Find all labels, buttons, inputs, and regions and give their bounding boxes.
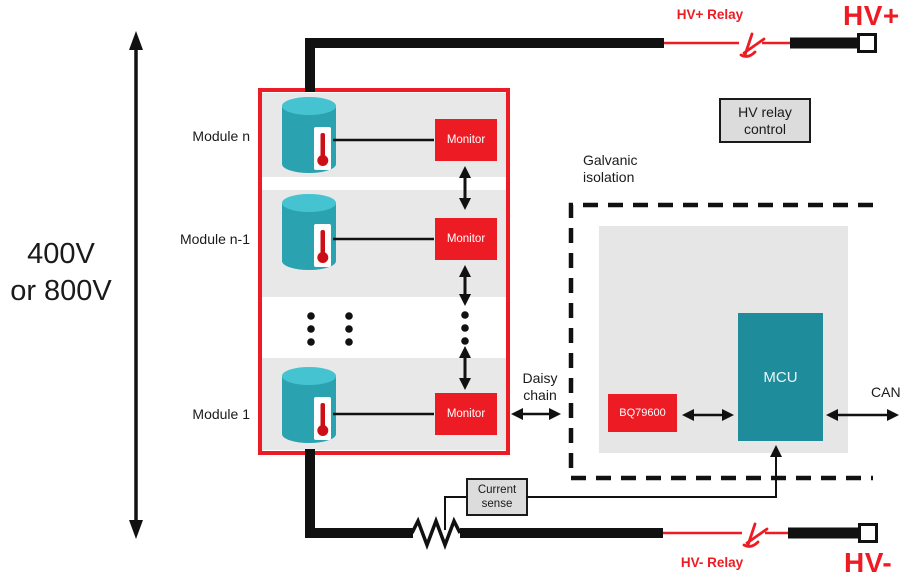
monitor-box-module-n: Monitor [435,119,497,161]
hv-plus-label: HV+ [843,0,900,32]
battery-cell-icon [281,96,337,174]
hv-plus-relay-switch-icon [741,34,764,56]
daisy-chain-arrow [511,408,561,420]
galvanic-isolation-label: Galvanic isolation [583,152,637,186]
monitor-box-module-1: Monitor [435,393,497,435]
module-n1-label: Module n-1 [130,231,250,247]
battery-cell-icon [281,366,337,444]
hv-relay-control-box: HV relay control [719,98,811,143]
hv-plus-relay-label: HV+ Relay [660,7,760,22]
bms-architecture-diagram: 400V or 800V Module n Module n-1 Module … [0,0,911,576]
can-label: CAN [871,384,901,401]
pack-voltage-label: 400V or 800V [0,236,122,310]
hv-minus-label: HV- [844,547,892,576]
hv-plus-rail [305,43,858,92]
battery-cell-icon [281,193,337,271]
mcu-chip: MCU [738,313,823,441]
hv-plus-terminal [857,33,877,53]
voltage-range-arrow [129,31,143,539]
module-n-label: Module n [130,128,250,144]
voltage-line2: or 800V [0,273,122,310]
hv-minus-terminal [858,523,878,543]
voltage-line1: 400V [0,236,122,273]
bq79600-chip: BQ79600 [608,394,677,432]
monitor-box-module-n1: Monitor [435,218,497,260]
daisy-chain-label: Daisy chain [510,370,570,404]
hv-minus-rail [305,449,859,545]
module-1-label: Module 1 [130,406,250,422]
hv-minus-relay-label: HV- Relay [662,555,762,570]
current-sense-box: Current sense [466,478,528,516]
hv-minus-relay-switch-icon [744,524,767,546]
shunt-resistor-icon [412,521,460,545]
